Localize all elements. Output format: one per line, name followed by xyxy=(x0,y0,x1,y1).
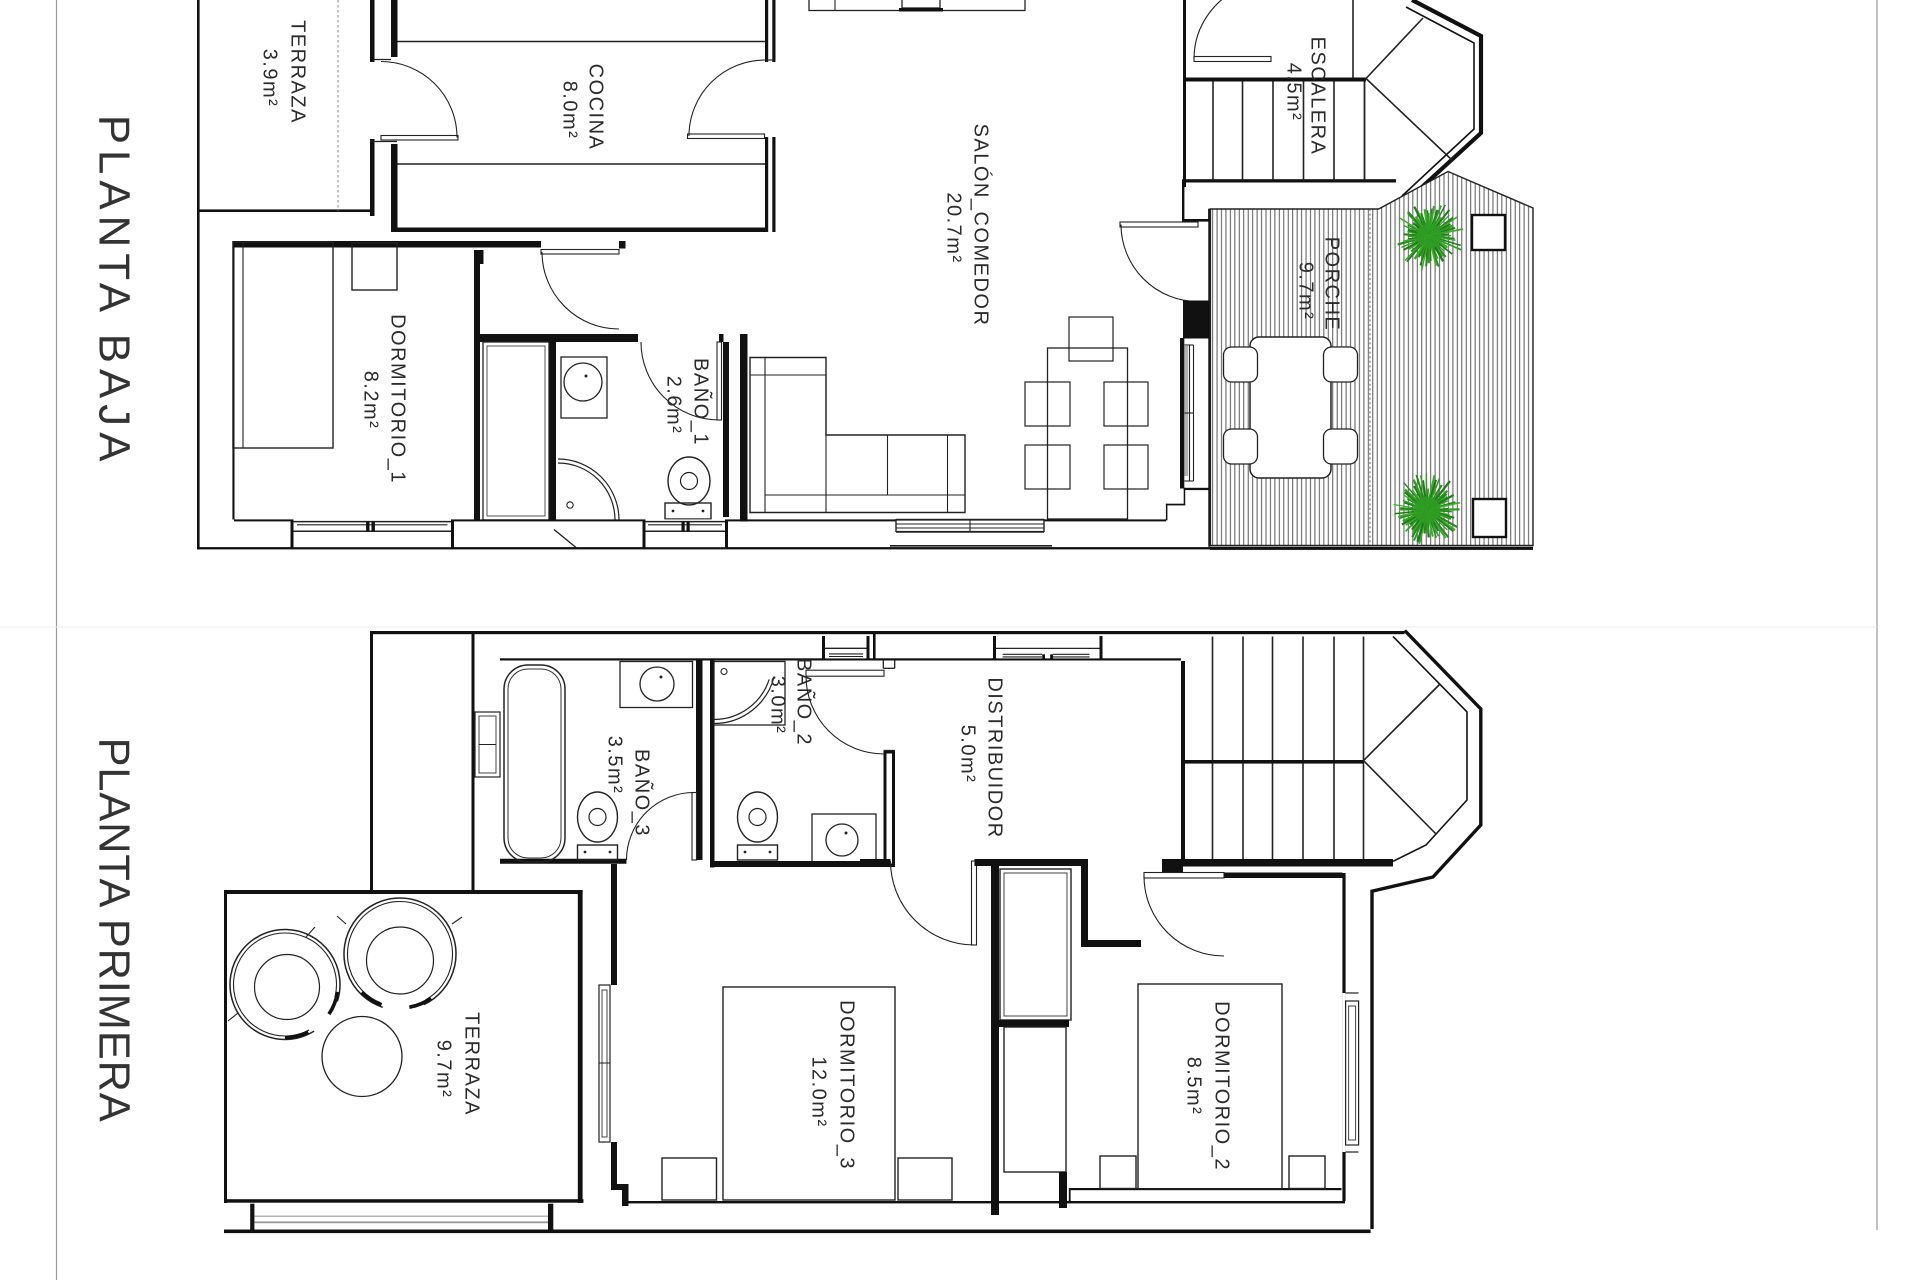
svg-text:3.9m²: 3.9m² xyxy=(259,49,281,108)
svg-text:PLANTA PRIMERA: PLANTA PRIMERA xyxy=(90,737,138,1122)
svg-text:TERRAZA: TERRAZA xyxy=(287,20,309,124)
svg-text:8.5m²: 8.5m² xyxy=(1183,1057,1205,1116)
svg-text:DORMITORIO_3: DORMITORIO_3 xyxy=(836,1000,858,1170)
svg-text:SALÓN_COMEDOR: SALÓN_COMEDOR xyxy=(970,124,993,327)
svg-text:BAÑO_3: BAÑO_3 xyxy=(631,749,655,837)
svg-text:BAÑO_2: BAÑO_2 xyxy=(793,658,817,746)
svg-text:PORCHE: PORCHE xyxy=(1321,237,1343,332)
svg-text:PLANTA BAJA: PLANTA BAJA xyxy=(89,115,138,468)
svg-text:COCINA: COCINA xyxy=(585,64,607,151)
svg-text:20.7m²: 20.7m² xyxy=(943,192,965,263)
svg-text:DORMITORIO_2: DORMITORIO_2 xyxy=(1211,1001,1233,1171)
svg-text:12.0m²: 12.0m² xyxy=(808,1056,830,1127)
svg-text:8.0m²: 8.0m² xyxy=(559,81,581,140)
svg-text:ESCALERA: ESCALERA xyxy=(1307,37,1329,156)
svg-text:TERRAZA: TERRAZA xyxy=(461,1012,483,1116)
svg-text:9.7m²: 9.7m² xyxy=(433,1040,455,1099)
svg-text:5.0m²: 5.0m² xyxy=(957,725,979,784)
svg-text:DISTRIBUIDOR: DISTRIBUIDOR xyxy=(984,677,1006,838)
svg-text:DORMITORIO_1: DORMITORIO_1 xyxy=(387,314,409,484)
svg-text:8.2m²: 8.2m² xyxy=(360,371,382,430)
svg-text:4.5m²: 4.5m² xyxy=(1283,63,1305,122)
svg-text:BAÑO_1: BAÑO_1 xyxy=(690,358,714,446)
svg-text:2.6m²: 2.6m² xyxy=(663,376,685,435)
svg-text:3.0m²: 3.0m² xyxy=(767,676,789,735)
svg-text:3.5m²: 3.5m² xyxy=(604,736,626,795)
svg-text:9.7m²: 9.7m² xyxy=(1295,262,1317,321)
